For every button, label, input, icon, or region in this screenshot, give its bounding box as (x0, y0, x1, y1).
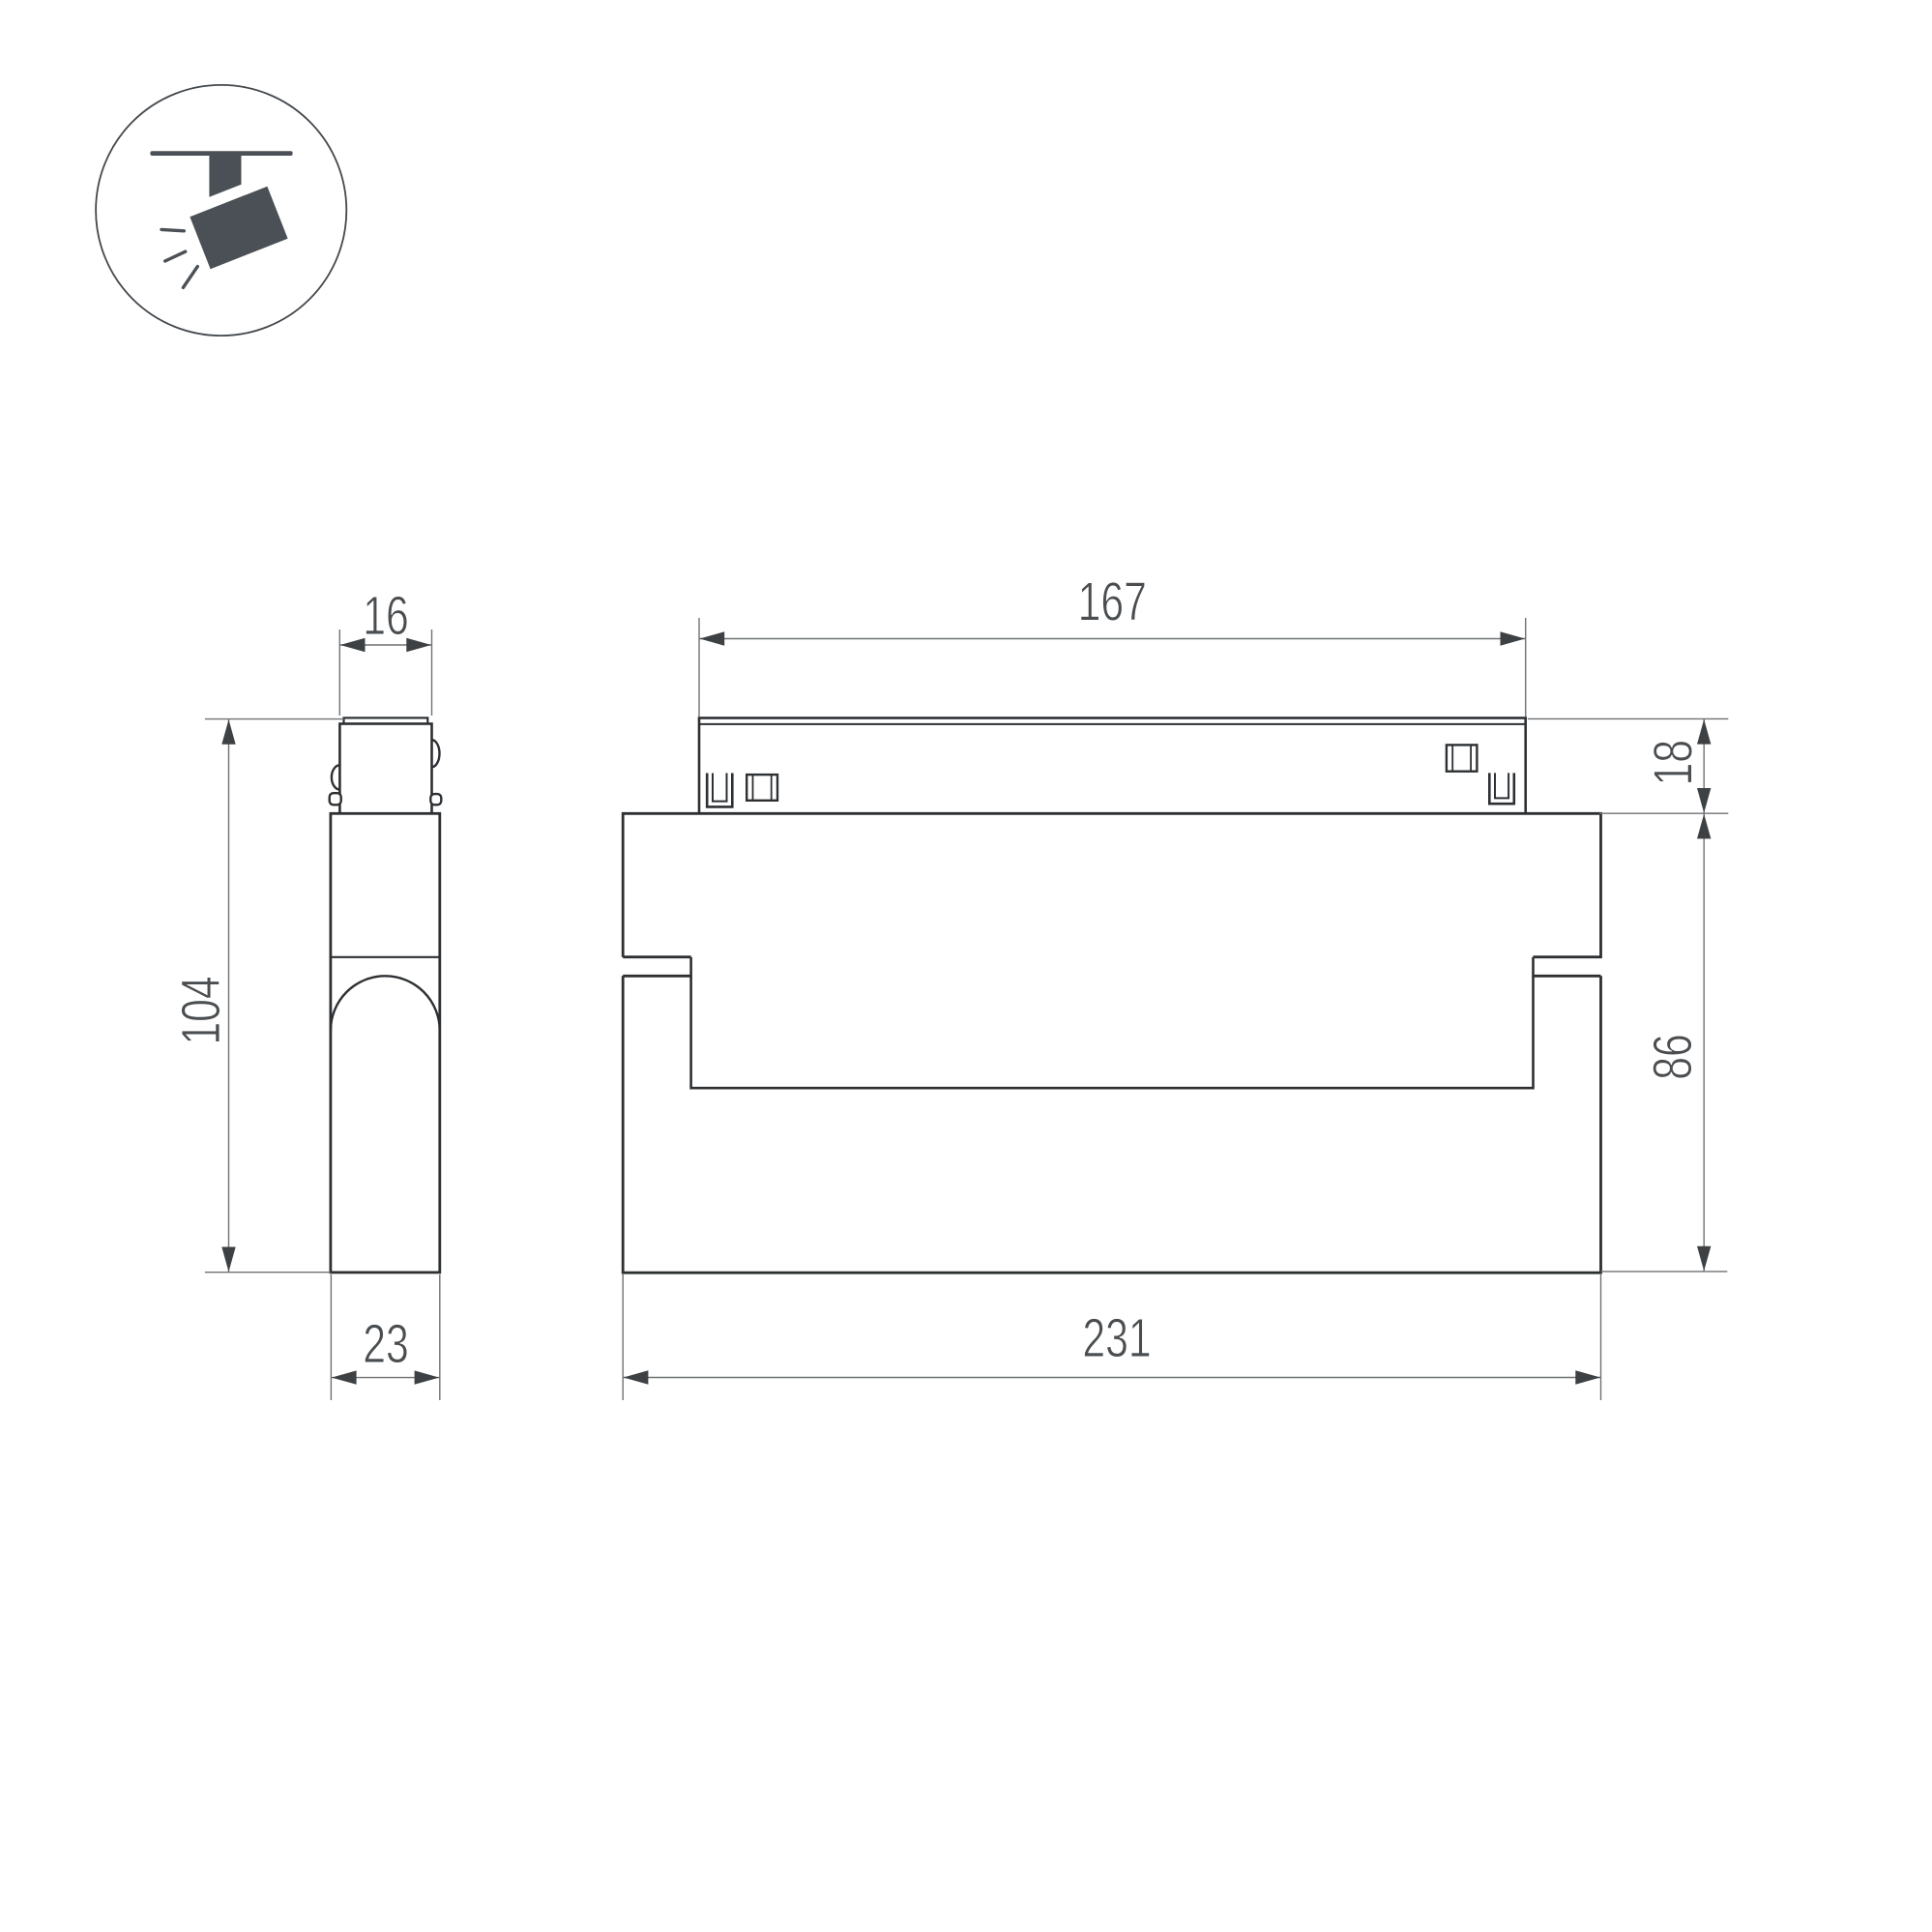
svg-text:23: 23 (363, 1312, 409, 1374)
svg-text:86: 86 (1641, 1034, 1703, 1080)
svg-text:104: 104 (169, 976, 231, 1044)
svg-text:167: 167 (1078, 570, 1147, 631)
svg-text:231: 231 (1082, 1306, 1151, 1368)
svg-text:16: 16 (363, 584, 409, 646)
svg-text:18: 18 (1641, 740, 1703, 786)
